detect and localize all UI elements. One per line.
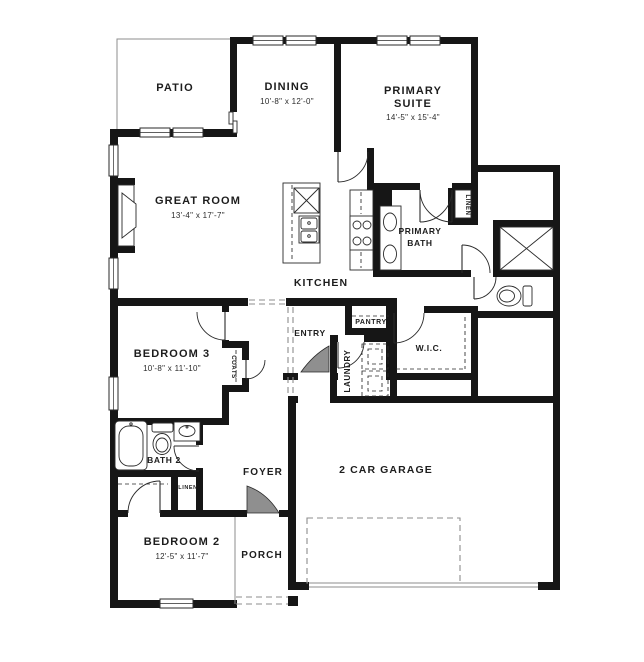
laundry-label: LAUNDRY: [343, 349, 352, 392]
garage-entry-door: [301, 346, 329, 372]
great-room-label: GREAT ROOM: [155, 195, 241, 207]
dining-dims: 10'-8" x 12'-0": [260, 97, 314, 106]
window: [173, 128, 203, 137]
door-suite-hall-a: [420, 190, 452, 222]
door-water-closet: [474, 277, 496, 299]
island-sink-icon: [299, 216, 319, 243]
window: [286, 36, 316, 45]
shower-icon: [500, 227, 553, 270]
floor-plan-page: PATIO DINING 10'-8" x 12'-0" PRIMARY SUI…: [0, 0, 644, 657]
dining-label: DINING: [264, 81, 309, 93]
kitchen-label: KITCHEN: [294, 277, 348, 289]
pantry-label: PANTRY: [355, 319, 387, 326]
window: [140, 128, 170, 137]
door-bedroom2: [128, 481, 160, 513]
linen-primary-label: LINEN: [464, 195, 470, 216]
toilet-bath2-icon: [152, 423, 173, 455]
bedroom3-dims: 10'-8" x 11'-10": [143, 364, 201, 373]
door-shower: [462, 245, 490, 273]
door-primary-suite: [338, 152, 368, 182]
door-bedroom3: [197, 312, 225, 340]
door-wic: [394, 313, 424, 343]
patio-label: PATIO: [156, 82, 193, 94]
labels-layer: PATIO DINING 10'-8" x 12'-0" PRIMARY SUI…: [134, 81, 470, 561]
bedroom2-label: BEDROOM 2: [144, 536, 221, 548]
washer-dryer-icon: [362, 344, 388, 396]
front-door: [247, 486, 279, 513]
fireplace: [118, 178, 136, 253]
primary-suite-label-2: SUITE: [394, 98, 432, 110]
kitchen-island: [283, 183, 320, 263]
primary-bath-label-1: PRIMARY: [398, 226, 441, 236]
porch-label: PORCH: [241, 550, 283, 561]
window: [410, 36, 440, 45]
bath2-label: BATH 2: [147, 455, 181, 465]
dishwasher-icon: [294, 188, 319, 213]
primary-suite-label-1: PRIMARY: [384, 85, 442, 97]
bedroom2-dims: 12'-5" x 11'-7": [155, 552, 208, 561]
coats-label: COATS: [230, 355, 236, 379]
toilet-primary-icon: [497, 286, 532, 306]
bedroom3-label: BEDROOM 3: [134, 348, 211, 360]
window: [109, 258, 118, 289]
primary-bath-label-2: BATH: [407, 238, 432, 248]
entry-label: ENTRY: [294, 328, 326, 338]
primary-vanity: [380, 206, 401, 270]
floor-plan-svg: PATIO DINING 10'-8" x 12'-0" PRIMARY SUI…: [0, 0, 644, 657]
door-suite-hall-b: [420, 190, 452, 222]
garage-label: 2 CAR GARAGE: [339, 464, 433, 476]
foyer-label: FOYER: [243, 467, 283, 478]
window: [377, 36, 407, 45]
wic-label: W.I.C.: [416, 343, 443, 353]
kitchen-counter: [350, 190, 373, 270]
primary-suite-dims: 14'-5" x 15'-4": [386, 113, 440, 122]
porch-post: [288, 596, 298, 606]
door-coats: [246, 360, 265, 379]
garage-door-line: [309, 583, 538, 587]
linen-hall-label: LINEN: [178, 485, 198, 491]
great-room-dims: 13'-4" x 17'-7": [171, 211, 225, 220]
window: [109, 145, 118, 176]
window: [160, 599, 193, 608]
range-icon: [350, 216, 373, 250]
sink-bath2-icon: [174, 422, 200, 441]
garage-apron: [307, 518, 460, 583]
window: [109, 377, 118, 410]
walls-layer: [110, 37, 560, 608]
tub-icon: [115, 421, 147, 470]
window: [253, 36, 283, 45]
